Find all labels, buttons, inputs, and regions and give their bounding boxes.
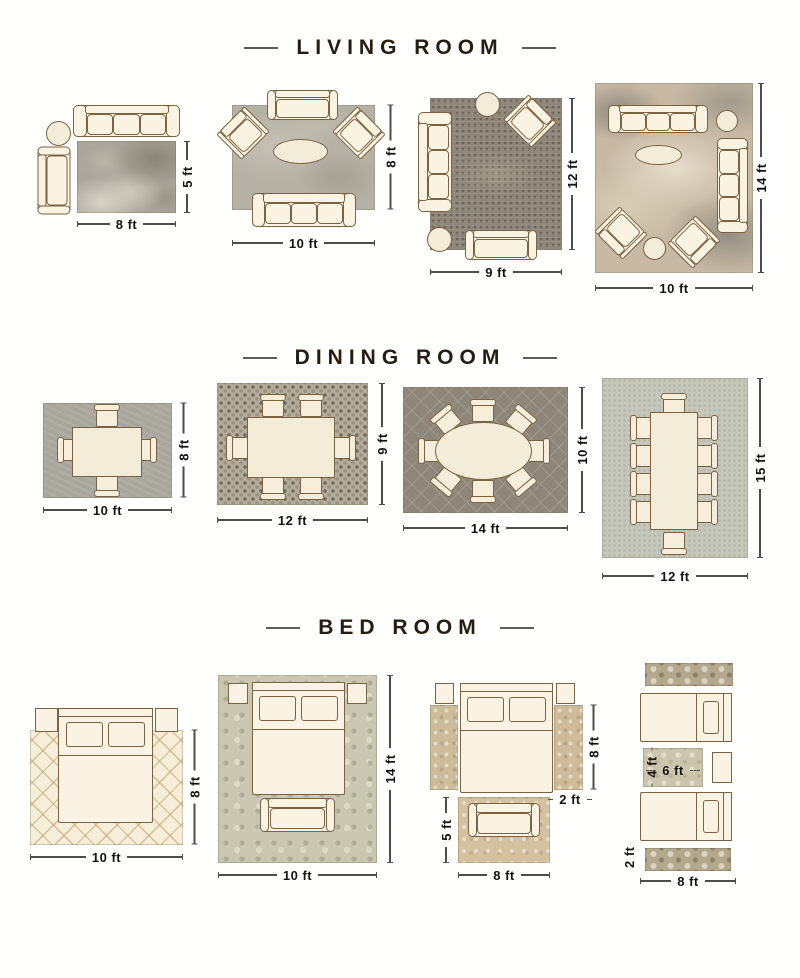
section-title-living-room: LIVING ROOM: [0, 36, 800, 60]
dimension-line: [218, 874, 277, 875]
bed: [252, 682, 345, 795]
sofa-back: [85, 105, 169, 114]
section-title-dining-room: DINING ROOM: [0, 346, 800, 370]
three-seat-sofa: [252, 193, 356, 227]
dimension-line: [403, 527, 465, 528]
pillow: [703, 701, 719, 735]
sofa-back: [418, 123, 428, 201]
bedroom-bench: [468, 803, 540, 837]
dimension-label: 15 ft: [751, 378, 769, 558]
headboard: [460, 683, 553, 692]
dimension-line: [232, 242, 283, 243]
dimension-line: [30, 856, 86, 857]
sofa-cushion: [270, 808, 325, 830]
sofa-back: [739, 148, 748, 222]
loveseat-sofa: [465, 230, 537, 260]
dimension-line: [760, 199, 761, 273]
chair-back: [711, 499, 718, 525]
sofa-cushion: [87, 114, 114, 134]
chair-back: [260, 493, 286, 500]
dimension-label: 10 ft: [232, 234, 375, 252]
bed: [58, 708, 153, 823]
dimension-line: [127, 856, 183, 857]
dimension-line: [571, 195, 572, 250]
dimension-line: [389, 675, 390, 748]
chair-back: [298, 394, 324, 401]
dining-chair: [472, 480, 494, 498]
chair-back: [630, 499, 637, 525]
chair-back: [661, 548, 687, 555]
mattress-line: [696, 693, 697, 742]
sofa-cushion: [477, 813, 530, 835]
sofa-cushion: [428, 174, 450, 199]
sofa-cushion: [646, 113, 671, 131]
dimension-line: [458, 874, 487, 875]
twin-runner-rug: [645, 663, 733, 686]
dimension-label: 14 ft: [403, 519, 568, 537]
chair-back: [418, 438, 425, 464]
mattress-line: [696, 792, 697, 841]
dimension-line: [705, 880, 736, 881]
dimension-label: 9 ft: [430, 263, 562, 281]
three-seat-sofa: [418, 112, 452, 212]
sofa-cushion: [474, 239, 527, 258]
section-title-text: BED ROOM: [318, 616, 482, 640]
bedside-runner-rug: [554, 705, 583, 790]
twin-runner-rug: [645, 848, 731, 871]
sofa-cushion: [428, 150, 450, 175]
pillow: [301, 696, 337, 721]
chair-back: [661, 393, 687, 400]
dimension-line: [183, 403, 184, 434]
chair-back: [711, 471, 718, 497]
dimension-line: [128, 509, 172, 510]
chair-back: [94, 404, 120, 411]
dimension-line: [759, 489, 760, 558]
round-side-table: [643, 237, 666, 260]
headboard: [723, 792, 732, 841]
bedside-runner-rug: [430, 705, 458, 790]
dimension-label: 10 ft: [573, 387, 591, 513]
mattress-line: [58, 755, 153, 756]
bedroom-bench: [260, 798, 335, 832]
sofa-cushion: [719, 150, 739, 174]
dimension-line: [651, 784, 652, 787]
three-seat-sofa: [73, 105, 180, 137]
pillow: [108, 722, 145, 747]
headboard: [58, 708, 153, 717]
dimension-line: [587, 799, 592, 800]
bed: [460, 683, 553, 793]
rug-size-guide: LIVING ROOM 8 ft 5 ft 10 ft 8 ft 9 ft 12…: [0, 0, 800, 978]
loveseat-sofa: [267, 90, 338, 120]
dining-table: [72, 427, 142, 477]
dimension-label: 8 ft: [585, 705, 603, 790]
dimension-label: 10 ft: [218, 866, 377, 884]
loveseat-sofa: [38, 147, 71, 215]
sofa-back: [619, 105, 697, 113]
mattress-line: [460, 730, 553, 731]
sofa-back: [275, 90, 330, 98]
round-side-table: [427, 227, 452, 252]
dining-chair: [472, 404, 494, 422]
chair-back: [226, 435, 233, 461]
pillow: [467, 697, 503, 722]
dimension-line: [445, 847, 446, 863]
chair-back: [630, 415, 637, 441]
dimension-label: 8 ft: [640, 872, 736, 890]
chair-back: [57, 437, 64, 463]
dining-table: [247, 417, 335, 478]
dimension-line: [324, 242, 375, 243]
dimension-label: 5 ft: [437, 797, 455, 863]
twin-bed: [640, 693, 732, 742]
dimension-label: 10 ft: [30, 848, 183, 866]
dimension-line: [143, 223, 176, 224]
dining-chair: [663, 532, 685, 550]
sofa-back: [38, 154, 47, 207]
sofa-arm: [717, 221, 748, 233]
dimension-line: [593, 764, 594, 790]
three-seat-sofa: [717, 138, 748, 233]
nightstand: [347, 683, 367, 704]
chair-back: [711, 443, 718, 469]
oval-coffee-table: [273, 139, 328, 164]
headboard: [723, 693, 732, 742]
dimension-label: 2 ft: [620, 844, 638, 874]
section-title-bed-room: BED ROOM: [0, 616, 800, 640]
dining-chair: [333, 437, 351, 459]
three-seat-sofa: [608, 105, 708, 133]
dimension-line: [581, 471, 582, 513]
sofa-back: [263, 193, 345, 203]
sofa-cushion: [670, 113, 695, 131]
sofa-cushion: [276, 99, 328, 118]
nightstand: [435, 683, 454, 704]
dimension-label: 8 ft: [186, 730, 204, 845]
dimension-line: [690, 770, 700, 771]
sofa-arm: [695, 105, 708, 133]
nightstand: [228, 683, 248, 704]
nightstand: [35, 708, 58, 732]
sofa-cushion: [317, 203, 343, 225]
headboard: [252, 682, 345, 691]
round-side-table: [46, 121, 71, 146]
title-dash: [523, 357, 557, 359]
sofa-cushion: [621, 113, 646, 131]
sofa-arm: [329, 90, 338, 120]
dimension-line: [194, 730, 195, 771]
dimension-label: 8 ft: [175, 403, 193, 498]
sofa-arm: [38, 206, 71, 215]
dimension-line: [183, 467, 184, 498]
round-side-table: [475, 92, 500, 117]
chair-back: [470, 399, 496, 406]
twin-bed: [640, 792, 732, 841]
dimension-label: 6 ft: [646, 761, 700, 779]
oval-coffee-table: [635, 145, 682, 165]
sofa-cushion: [265, 203, 291, 225]
dimension-label: 12 ft: [602, 567, 748, 585]
dimension-line: [43, 509, 87, 510]
dimension-line: [640, 880, 671, 881]
dimension-label: 9 ft: [373, 383, 391, 505]
sofa-cushion: [140, 114, 167, 134]
dimension-label: 8 ft: [458, 866, 550, 884]
section-title-text: LIVING ROOM: [296, 36, 503, 60]
sofa-back: [473, 230, 529, 238]
dimension-line: [445, 797, 446, 813]
chair-back: [630, 471, 637, 497]
dimension-line: [513, 271, 562, 272]
dimension-line: [313, 519, 368, 520]
dimension-line: [695, 287, 753, 288]
dimension-line: [759, 378, 760, 447]
dimension-line: [593, 705, 594, 731]
dimension-line: [318, 874, 377, 875]
dining-chair: [300, 399, 322, 417]
dimension-line: [548, 799, 553, 800]
dimension-line: [390, 174, 391, 210]
dimension-line: [506, 527, 568, 528]
title-dash: [500, 627, 534, 629]
chair-back: [298, 493, 324, 500]
chair-back: [150, 437, 157, 463]
dimension-label: 10 ft: [595, 279, 753, 297]
sofa-back: [268, 798, 326, 808]
round-side-table: [716, 110, 738, 132]
chair-back: [349, 435, 356, 461]
sofa-cushion: [428, 125, 450, 150]
mattress-line: [252, 729, 345, 730]
sofa-cushion: [719, 197, 739, 221]
sofa-arm: [531, 803, 540, 837]
sofa-arm: [528, 230, 537, 260]
dining-chair: [300, 477, 322, 495]
nightstand: [556, 683, 575, 704]
title-dash: [243, 357, 277, 359]
dimension-line: [760, 83, 761, 157]
dimension-label: 2 ft: [548, 790, 592, 808]
dining-chair: [262, 477, 284, 495]
dimension-line: [77, 223, 110, 224]
dimension-label: 14 ft: [752, 83, 770, 273]
dimension-line: [390, 105, 391, 141]
dimension-line: [430, 271, 479, 272]
sofa-cushion: [113, 114, 140, 134]
dimension-line: [595, 287, 653, 288]
pillow: [509, 697, 545, 722]
living-rug-8x5: [77, 141, 176, 213]
pillow: [66, 722, 103, 747]
dimension-label: 5 ft: [178, 141, 196, 213]
pillow: [259, 696, 295, 721]
dimension-label: 8 ft: [77, 215, 176, 233]
nightstand: [712, 752, 732, 783]
dimension-label: 14 ft: [381, 675, 399, 863]
dimension-line: [381, 461, 382, 505]
chair-back: [711, 415, 718, 441]
dining-chair: [262, 399, 284, 417]
section-title-text: DINING ROOM: [295, 346, 506, 370]
chair-back: [630, 443, 637, 469]
dimension-line: [696, 575, 748, 576]
chair-back: [260, 394, 286, 401]
dimension-line: [651, 748, 652, 751]
sofa-cushion: [719, 174, 739, 198]
dimension-line: [646, 770, 656, 771]
title-dash: [522, 47, 556, 49]
dimension-line: [602, 575, 654, 576]
dining-table: [650, 412, 698, 530]
nightstand: [155, 708, 178, 732]
dimension-label: 12 ft: [217, 511, 368, 529]
dimension-line: [581, 387, 582, 429]
sofa-back: [476, 803, 532, 813]
title-dash: [266, 627, 300, 629]
chair-back: [94, 490, 120, 497]
dimension-label: 12 ft: [563, 98, 581, 250]
oval-dining-table: [435, 422, 532, 480]
title-dash: [244, 47, 278, 49]
sofa-cushion: [291, 203, 317, 225]
sofa-arm: [418, 199, 452, 212]
dimension-line: [571, 98, 572, 153]
chair-back: [543, 438, 550, 464]
pillow: [703, 800, 719, 834]
dimension-line: [186, 141, 187, 160]
sofa-cushion: [47, 155, 68, 205]
dimension-line: [186, 194, 187, 213]
dimension-line: [381, 383, 382, 427]
dimension-label: 10 ft: [43, 501, 172, 519]
dimension-line: [389, 790, 390, 863]
dimension-label: 8 ft: [382, 105, 400, 210]
sofa-arm: [326, 798, 335, 832]
dimension-line: [217, 519, 272, 520]
dining-chair: [96, 409, 118, 427]
dimension-line: [521, 874, 550, 875]
chair-back: [470, 496, 496, 503]
dimension-line: [194, 804, 195, 845]
